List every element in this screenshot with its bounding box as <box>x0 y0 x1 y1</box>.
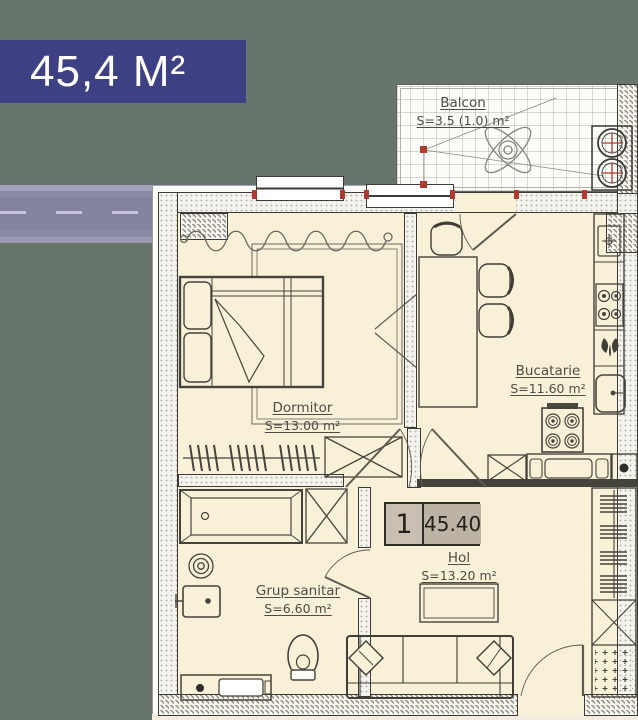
room-label-balcon: Balcon S=3.5 (1.0) m² <box>398 95 528 129</box>
wall-hatch-bedroom-corner <box>180 213 228 240</box>
area-badge: 45,4 M² <box>0 40 246 103</box>
bucatarie-area: S=11.60 m² <box>492 381 604 397</box>
wall-bottom-left <box>158 694 518 716</box>
floor-plan-page: 45,4 M² <box>0 0 638 720</box>
window-bedroom <box>256 176 344 201</box>
unit-label-box: 1 45.40 <box>384 502 480 546</box>
apartment-floor-fill <box>170 205 626 703</box>
unit-number: 1 <box>386 504 424 544</box>
entry-door-opening <box>518 694 584 715</box>
room-label-hol: Hol S=13.20 m² <box>413 550 505 584</box>
balcon-name: Balcon <box>398 95 528 113</box>
wall-balcony-right <box>617 84 638 194</box>
balcon-area: S=3.5 (1.0) m² <box>398 113 528 129</box>
hol-area: S=13.20 m² <box>413 568 505 584</box>
hol-name: Hol <box>413 550 505 568</box>
wall-left <box>158 192 178 714</box>
dormitor-name: Dormitor <box>245 400 360 418</box>
area-badge-label: 45,4 M² <box>30 47 186 97</box>
grup-sanitar-name: Grup sanitar <box>232 583 364 601</box>
room-label-dormitor: Dormitor S=13.00 m² <box>245 400 360 434</box>
room-label-grup-sanitar: Grup sanitar S=6.60 m² <box>232 583 364 617</box>
room-label-bucatarie: Bucatarie S=11.60 m² <box>492 363 604 397</box>
wall-hatch-kitchen-corner <box>606 213 638 253</box>
wall-right <box>617 192 638 714</box>
grup-sanitar-area: S=6.60 m² <box>232 601 364 617</box>
wall-bottom-right <box>584 694 638 716</box>
wall-bedroom-kitchen <box>404 213 417 428</box>
dormitor-area: S=13.00 m² <box>245 418 360 434</box>
wall-bath-upper <box>358 487 371 548</box>
unit-total-area: 45.40 <box>424 504 481 544</box>
window-kitchen <box>366 184 454 208</box>
wall-kitchen-hall <box>417 479 638 487</box>
bucatarie-name: Bucatarie <box>492 363 604 381</box>
wall-bedroom-bath <box>178 474 344 487</box>
balcony-door-opening <box>456 193 516 212</box>
